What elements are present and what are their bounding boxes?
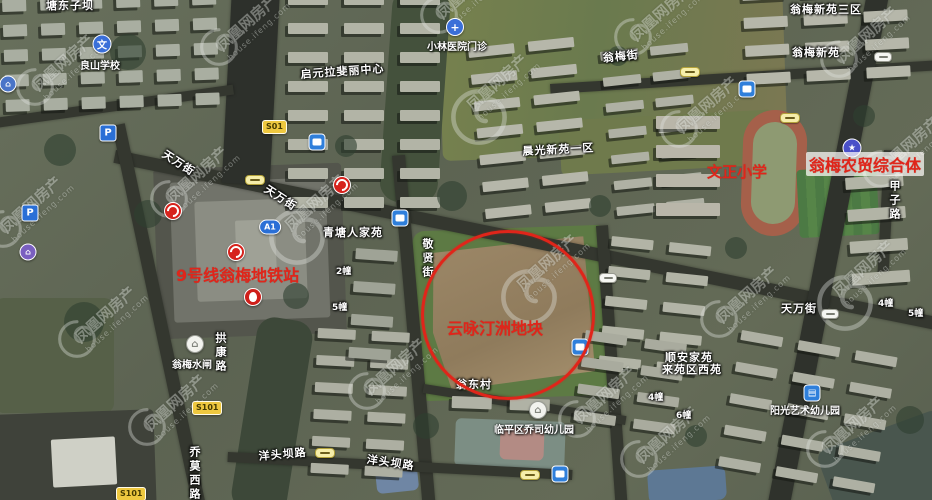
building-cluster bbox=[468, 35, 607, 236]
building bbox=[154, 0, 178, 7]
building bbox=[482, 177, 529, 192]
building bbox=[155, 19, 179, 32]
area-label: 塘东子坝 bbox=[46, 0, 94, 13]
area-label: 来苑区西苑 bbox=[662, 361, 722, 377]
annotation-market-complex: 翁梅农贸综合体 bbox=[806, 152, 924, 176]
poi-school-icon: 文 bbox=[93, 35, 112, 54]
poi-metro-icon bbox=[227, 243, 245, 261]
building bbox=[633, 419, 676, 435]
building bbox=[855, 350, 898, 367]
building bbox=[79, 21, 103, 34]
building bbox=[616, 203, 655, 216]
building bbox=[718, 456, 761, 473]
poi-stop-y-icon bbox=[245, 175, 265, 185]
building bbox=[866, 65, 911, 78]
road-shield: S101 bbox=[192, 401, 222, 415]
building bbox=[42, 48, 66, 61]
building bbox=[288, 110, 328, 121]
poi-kind-icon: ⌂ bbox=[529, 401, 547, 419]
building bbox=[729, 393, 772, 410]
building bbox=[605, 100, 644, 113]
area-label: 2幢 bbox=[336, 264, 351, 277]
poi-stop-y-icon bbox=[680, 67, 700, 77]
poi-stop-y-icon bbox=[780, 113, 800, 123]
building bbox=[5, 99, 29, 112]
building bbox=[351, 314, 394, 328]
road-label: 天万街 bbox=[781, 300, 817, 316]
building bbox=[288, 0, 328, 5]
building bbox=[81, 71, 105, 84]
tree-canopy bbox=[335, 135, 357, 157]
building bbox=[577, 383, 620, 399]
area-label: 青塘人家苑 bbox=[323, 224, 383, 240]
building bbox=[195, 92, 219, 105]
building bbox=[344, 23, 384, 34]
annotation-metro-station: 9号线翁梅地铁站 bbox=[176, 262, 299, 286]
building bbox=[611, 151, 650, 164]
building bbox=[288, 52, 328, 63]
building bbox=[344, 168, 384, 179]
building bbox=[656, 145, 720, 158]
poi-bus-icon bbox=[392, 210, 409, 227]
poi-label: 阳光艺术幼儿园 bbox=[770, 402, 840, 417]
building bbox=[355, 248, 398, 262]
building bbox=[533, 91, 580, 106]
building bbox=[849, 238, 908, 254]
building bbox=[608, 126, 647, 139]
poi-community-icon: ⌂ bbox=[20, 244, 37, 261]
area-label: 6幢 bbox=[676, 408, 691, 421]
building bbox=[545, 198, 592, 213]
building bbox=[849, 382, 892, 399]
building bbox=[288, 23, 328, 34]
poi-community2-icon: ⌂ bbox=[0, 76, 17, 93]
satellite-map[interactable]: 凤凰网房产house.ifeng.com凤凰网房产house.ifeng.com… bbox=[0, 0, 932, 500]
area-label: 5幢 bbox=[332, 300, 347, 313]
building bbox=[474, 97, 521, 112]
building bbox=[742, 0, 787, 1]
tree-canopy bbox=[725, 237, 747, 259]
building bbox=[288, 81, 328, 92]
building bbox=[775, 466, 818, 483]
building bbox=[400, 110, 440, 121]
tree-canopy bbox=[134, 200, 162, 228]
building bbox=[117, 20, 141, 33]
poi-bus-icon bbox=[309, 134, 326, 151]
building bbox=[400, 197, 440, 208]
road-label: 甲子路 bbox=[886, 180, 902, 222]
building bbox=[806, 68, 851, 81]
building bbox=[797, 340, 840, 357]
building bbox=[479, 151, 526, 166]
building bbox=[603, 74, 642, 87]
tree-canopy bbox=[64, 302, 104, 342]
building bbox=[366, 439, 404, 451]
building bbox=[476, 124, 523, 139]
poi-building-icon: ▤ bbox=[804, 385, 821, 402]
poi-label: 良山学校 bbox=[80, 57, 120, 72]
building bbox=[2, 0, 26, 12]
poi-gate-icon: ⌂ bbox=[186, 335, 204, 353]
building bbox=[611, 236, 654, 250]
building bbox=[344, 0, 384, 5]
road-label: 乔莫西路 bbox=[186, 446, 202, 500]
poi-label: 小林医院门诊 bbox=[427, 38, 487, 53]
building bbox=[832, 476, 875, 493]
building bbox=[655, 95, 694, 108]
building bbox=[605, 296, 648, 310]
building bbox=[740, 330, 783, 347]
building bbox=[312, 436, 350, 448]
tree-canopy bbox=[685, 425, 707, 447]
building bbox=[310, 463, 348, 475]
building bbox=[485, 204, 532, 219]
road-shield: S01 bbox=[262, 120, 287, 134]
building bbox=[81, 96, 105, 109]
building bbox=[536, 117, 583, 132]
tree-canopy bbox=[589, 195, 611, 217]
tree-canopy bbox=[853, 105, 875, 127]
building bbox=[344, 81, 384, 92]
annotation-plot: 云咏汀洲地块 bbox=[447, 315, 543, 339]
poi-bus-icon bbox=[739, 81, 756, 98]
building bbox=[666, 272, 709, 286]
area-label: 翁梅新苑 bbox=[792, 44, 840, 60]
poi-metro-icon bbox=[164, 202, 182, 220]
building bbox=[662, 302, 705, 316]
building bbox=[156, 44, 180, 57]
building bbox=[724, 425, 767, 442]
terrain-patch bbox=[51, 436, 117, 487]
poi-label: 翁梅水闸 bbox=[172, 356, 212, 371]
building bbox=[41, 23, 65, 36]
building bbox=[781, 435, 824, 452]
building bbox=[43, 98, 67, 111]
poi-parking-icon: P bbox=[22, 205, 39, 222]
poi-label: 临平区乔司幼儿园 bbox=[494, 421, 574, 436]
poi-stop-w-icon bbox=[874, 52, 892, 62]
tree-canopy bbox=[896, 406, 924, 434]
building bbox=[669, 242, 712, 256]
building bbox=[863, 9, 908, 22]
building bbox=[852, 270, 911, 286]
poi-parking-icon: P bbox=[100, 125, 117, 142]
poi-stop-w-icon bbox=[599, 273, 617, 283]
building bbox=[193, 18, 217, 31]
building bbox=[315, 382, 353, 394]
annotation-primary-school: 文正小学 bbox=[707, 161, 767, 182]
building bbox=[573, 410, 616, 426]
area-label: 4幢 bbox=[648, 390, 663, 403]
building bbox=[192, 0, 216, 5]
building bbox=[400, 168, 440, 179]
tree-canopy bbox=[283, 283, 309, 309]
poi-exit-icon: A1 bbox=[259, 220, 281, 235]
building bbox=[313, 409, 351, 421]
building bbox=[353, 281, 396, 295]
building bbox=[116, 0, 140, 8]
poi-bus-icon bbox=[552, 466, 569, 483]
building bbox=[348, 347, 391, 361]
poi-kfc-icon bbox=[244, 288, 262, 306]
building bbox=[656, 203, 720, 216]
poi-stop-y-icon bbox=[315, 448, 335, 458]
building bbox=[344, 110, 384, 121]
building bbox=[530, 64, 577, 79]
building bbox=[400, 23, 440, 34]
building bbox=[581, 357, 624, 373]
poi-hospital-icon: + bbox=[446, 18, 464, 36]
poi-metro-icon bbox=[333, 176, 351, 194]
building bbox=[656, 116, 720, 129]
area-label: 5幢 bbox=[908, 306, 923, 319]
building bbox=[344, 197, 384, 208]
building bbox=[471, 70, 518, 85]
building bbox=[157, 69, 181, 82]
building bbox=[119, 95, 143, 108]
building bbox=[400, 81, 440, 92]
road-shield: S101 bbox=[116, 487, 146, 500]
terrain-patch bbox=[229, 315, 315, 500]
building bbox=[838, 445, 881, 462]
building bbox=[119, 70, 143, 83]
poi-stop-y-icon bbox=[520, 470, 540, 480]
building bbox=[735, 362, 778, 379]
tree-canopy bbox=[437, 181, 467, 211]
building bbox=[400, 139, 440, 150]
tree-canopy bbox=[413, 413, 439, 439]
building bbox=[843, 413, 886, 430]
building bbox=[400, 52, 440, 63]
building bbox=[743, 16, 788, 29]
area-label: 翁梅新苑三区 bbox=[790, 1, 862, 17]
building bbox=[614, 177, 653, 190]
road-label: 拱康路 bbox=[212, 332, 228, 374]
building bbox=[865, 37, 910, 50]
area-label: 4幢 bbox=[878, 296, 893, 309]
building bbox=[452, 396, 492, 409]
tree-canopy bbox=[44, 134, 76, 166]
building bbox=[157, 94, 181, 107]
building bbox=[367, 412, 405, 424]
building bbox=[542, 171, 589, 186]
building bbox=[194, 43, 218, 56]
building-cluster bbox=[288, 0, 456, 226]
building bbox=[3, 24, 27, 37]
building bbox=[195, 67, 219, 80]
building bbox=[43, 73, 67, 86]
building bbox=[745, 44, 790, 57]
building bbox=[400, 0, 440, 5]
building bbox=[369, 385, 407, 397]
poi-stop-w-icon bbox=[821, 309, 839, 319]
watermark-domain: house.ifeng.com bbox=[10, 183, 77, 244]
building bbox=[4, 49, 28, 62]
building bbox=[288, 168, 328, 179]
